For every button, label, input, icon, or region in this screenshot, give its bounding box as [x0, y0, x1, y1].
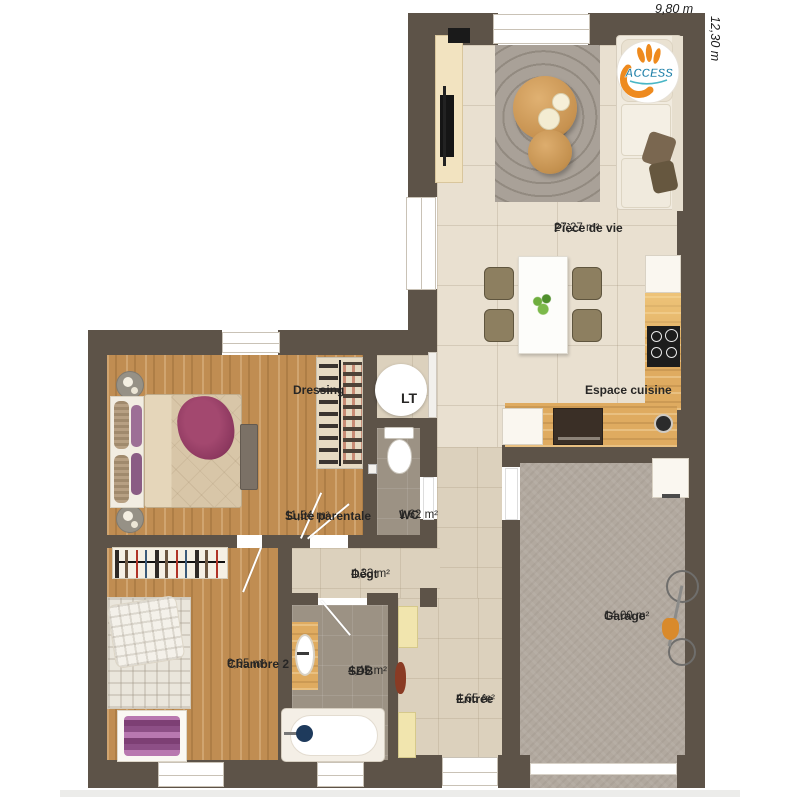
- toilet-bowl: [387, 439, 412, 474]
- suite-headboard: [110, 396, 144, 508]
- access-logo-graphic: ACCESS: [616, 40, 680, 104]
- wall: [420, 588, 437, 607]
- candle: [538, 108, 560, 130]
- candle: [131, 521, 138, 528]
- entree-cabinet: [398, 606, 418, 648]
- front-door: [442, 757, 498, 786]
- water-heater: [652, 458, 689, 498]
- access-logo-text: ACCESS: [624, 68, 673, 80]
- dining-chair: [484, 267, 514, 300]
- window-suite-top: [222, 332, 280, 353]
- room-area: 1,62 m²: [399, 508, 438, 522]
- bicycle-bag: [662, 618, 679, 640]
- candle: [123, 511, 133, 521]
- chambre2-wardrobe: [112, 547, 228, 579]
- dressing-closet: [316, 357, 363, 469]
- entree-decor: [395, 662, 406, 694]
- toilet-tank: [384, 427, 414, 439]
- kitchen-base-cabinet: [502, 408, 543, 445]
- wall: [420, 519, 437, 548]
- room-area: 4,45 m²: [348, 664, 387, 678]
- wall: [502, 755, 530, 788]
- wall: [398, 755, 442, 788]
- wardrobe-clothes: [115, 550, 225, 578]
- ground-shadow: [60, 790, 740, 797]
- wall: [677, 755, 705, 788]
- candle: [123, 377, 133, 387]
- wall-decor: [448, 28, 470, 43]
- water-heater-vent: [662, 494, 680, 498]
- dining-chair: [572, 309, 602, 342]
- room-area: 9,05 m²: [227, 657, 266, 671]
- room-name: Espace cuisine: [585, 383, 672, 398]
- burner: [651, 347, 662, 358]
- chambre2-pillow: [106, 595, 185, 669]
- window-chambre2-bottom: [158, 762, 224, 787]
- room-area: 4,33 m²: [351, 567, 390, 581]
- closet-rod: [339, 360, 341, 466]
- oven-handle: [558, 437, 600, 440]
- room-area: 27,27 m²: [554, 221, 599, 235]
- closet-clothes: [319, 362, 338, 464]
- room-area: 14,00 m²: [604, 609, 649, 623]
- tp-holder: [368, 464, 377, 474]
- dining-chair: [484, 309, 514, 342]
- floor-plan: LT Pièce de vie 27,27 m² Espace cuisine …: [0, 0, 800, 800]
- table-plant: [531, 291, 553, 317]
- wall: [278, 330, 437, 355]
- nightstand: [116, 505, 144, 533]
- wall: [420, 428, 437, 477]
- burner: [651, 331, 662, 342]
- garage-apron: [530, 775, 677, 788]
- entree-cabinet: [398, 712, 416, 758]
- candle: [552, 93, 570, 111]
- pillow-purple: [131, 453, 142, 495]
- pillow: [114, 455, 129, 503]
- window-living-top: [493, 14, 590, 44]
- dining-chair: [572, 267, 602, 300]
- room-area: 4,65 m²: [456, 692, 495, 706]
- lt-partition: [428, 352, 437, 418]
- wall: [408, 13, 437, 197]
- garage-interior-door: [505, 468, 518, 520]
- sdb-sink: [295, 634, 315, 676]
- garage-floor: [520, 463, 685, 763]
- chambre2-bed: [107, 597, 191, 709]
- access-logo: ACCESS: [616, 40, 680, 104]
- pillow: [114, 401, 129, 449]
- wall: [88, 330, 107, 788]
- garage-door: [530, 763, 677, 775]
- nightstand: [116, 371, 144, 399]
- bathtub: [281, 708, 385, 762]
- kitchen-fridge: [645, 255, 681, 293]
- kitchen-oven: [553, 408, 603, 445]
- dimension-right: 12,30 m: [708, 16, 722, 61]
- burner: [665, 329, 678, 342]
- kitchen-kettle: [654, 414, 673, 433]
- pillow-purple: [131, 405, 142, 447]
- wall: [88, 760, 440, 788]
- closet-clothes: [343, 362, 362, 464]
- room-name: LT: [401, 390, 417, 408]
- wall: [367, 593, 398, 605]
- bed-bench: [240, 424, 258, 490]
- bathtub-shower-head: [296, 725, 313, 742]
- corridor-floor: [437, 447, 502, 600]
- burner: [666, 347, 677, 358]
- room-name: Dressing: [293, 383, 344, 398]
- wall: [685, 463, 705, 788]
- cooktop: [647, 326, 680, 367]
- window-living-left: [406, 197, 436, 290]
- tv-soundbar: [443, 86, 446, 166]
- sdb-faucet: [297, 652, 309, 655]
- bicycle-wheel: [668, 638, 696, 666]
- candle: [131, 387, 138, 394]
- window-sdb-bottom: [317, 762, 364, 787]
- wall: [88, 330, 222, 355]
- room-area: 11,54 m²: [285, 509, 330, 523]
- coffee-table-small: [528, 130, 572, 174]
- dimension-top: 9,80 m: [655, 2, 693, 16]
- purple-blanket: [124, 716, 180, 756]
- chambre2-bench: [117, 710, 187, 762]
- wall: [502, 520, 520, 755]
- wall: [262, 535, 310, 548]
